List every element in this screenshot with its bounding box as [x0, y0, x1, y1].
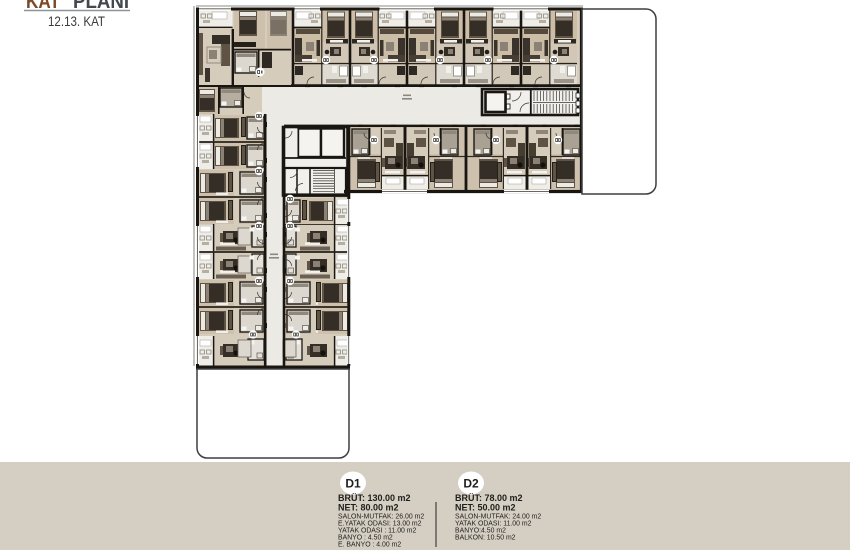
svg-text:YATAK ODASI : 11.00 m2: YATAK ODASI : 11.00 m2: [338, 528, 417, 535]
svg-text:BANYO:4.50 m2: BANYO:4.50 m2: [455, 528, 506, 535]
svg-text:D2: D2: [463, 477, 479, 491]
svg-text:YATAK ODASI: 11.00 m2: YATAK ODASI: 11.00 m2: [455, 521, 532, 528]
svg-text:NET: 50.00 m2: NET: 50.00 m2: [455, 503, 516, 513]
svg-text:SALON-MUTFAK: 24.00 m2: SALON-MUTFAK: 24.00 m2: [455, 514, 541, 521]
svg-text:NET: 80.00 m2: NET: 80.00 m2: [338, 503, 399, 513]
svg-text:SALON-MUTFAK: 26.00 m2: SALON-MUTFAK: 26.00 m2: [338, 514, 424, 521]
svg-text:E. BANYO : 4.00 m2: E. BANYO : 4.00 m2: [338, 542, 401, 549]
svg-text:D1: D1: [345, 477, 361, 491]
svg-text:BANYO : 4.50 m2: BANYO : 4.50 m2: [338, 535, 393, 542]
svg-text:E.YATAK ODASI: 13.00 m2: E.YATAK ODASI: 13.00 m2: [338, 521, 422, 528]
svg-text:BRÜT: 130.00 m2: BRÜT: 130.00 m2: [338, 493, 411, 503]
svg-text:BALKON: 10.50 m2: BALKON: 10.50 m2: [455, 535, 516, 542]
svg-text:12.13. KAT: 12.13. KAT: [48, 14, 105, 29]
svg-text:BRÜT: 78.00 m2: BRÜT: 78.00 m2: [455, 493, 523, 503]
